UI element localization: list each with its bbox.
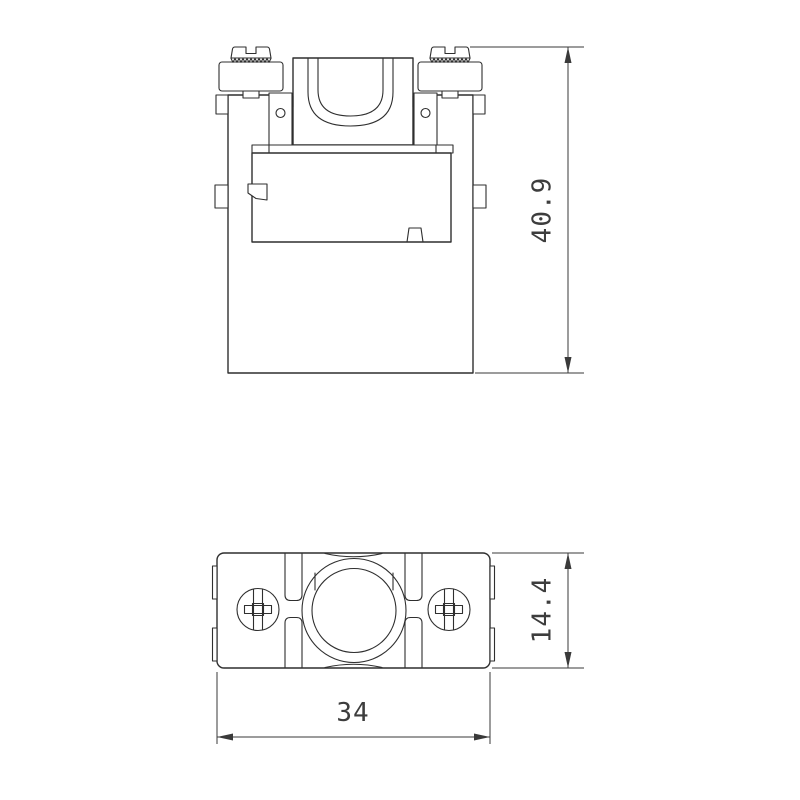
edge-bump-left-upper — [213, 566, 218, 599]
front-panel — [248, 153, 451, 242]
arrow-right-icon — [474, 734, 490, 741]
top-view — [213, 553, 495, 668]
screw-tip-left — [243, 91, 259, 98]
top-screw-right — [428, 589, 470, 631]
front-bracket-left — [269, 93, 292, 145]
front-bracket-right — [414, 93, 437, 145]
dimension-front-height: 40.9 — [470, 47, 584, 373]
edge-bump-left-lower — [213, 628, 218, 661]
front-ear-top-right — [473, 95, 485, 114]
dimension-label-front-height: 40.9 — [528, 177, 558, 244]
front-screw-left — [231, 47, 271, 62]
front-ear-mid-left — [215, 185, 228, 208]
technical-drawing-canvas: 40.9 14.4 34 — [0, 0, 800, 800]
top-screw-left — [237, 589, 279, 631]
arrow-up-icon — [565, 553, 572, 569]
front-screw-right — [430, 47, 470, 62]
front-view — [215, 47, 486, 373]
edge-bump-right-lower — [490, 628, 495, 661]
dimension-label-top-width: 34 — [336, 698, 369, 728]
arrow-down-icon — [565, 357, 572, 373]
arrow-up-icon — [565, 47, 572, 63]
dimension-label-top-height: 14.4 — [528, 577, 558, 644]
front-ear-mid-right — [473, 185, 486, 208]
technical-drawing-page: 40.9 14.4 34 — [0, 0, 800, 800]
clamp-block-left — [219, 62, 283, 91]
screw-tip-right — [442, 91, 458, 98]
edge-bump-right-upper — [490, 566, 495, 599]
front-housing — [286, 58, 420, 145]
dimension-top-height: 14.4 — [492, 553, 584, 668]
front-ear-top-left — [216, 95, 228, 114]
clamp-block-right — [418, 62, 482, 91]
arrow-left-icon — [217, 734, 233, 741]
front-bar — [252, 145, 453, 153]
dimension-top-width: 34 — [217, 672, 490, 744]
arrow-down-icon — [565, 652, 572, 668]
